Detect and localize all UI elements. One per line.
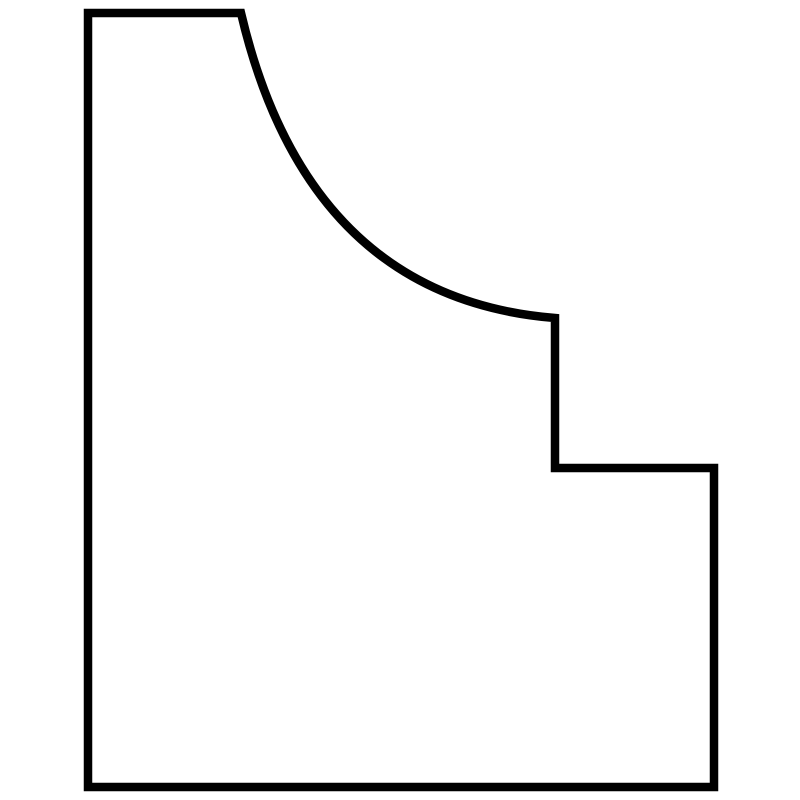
shape-svg bbox=[0, 0, 800, 800]
drawing-canvas bbox=[0, 0, 800, 800]
profile-outline-path bbox=[88, 13, 714, 787]
